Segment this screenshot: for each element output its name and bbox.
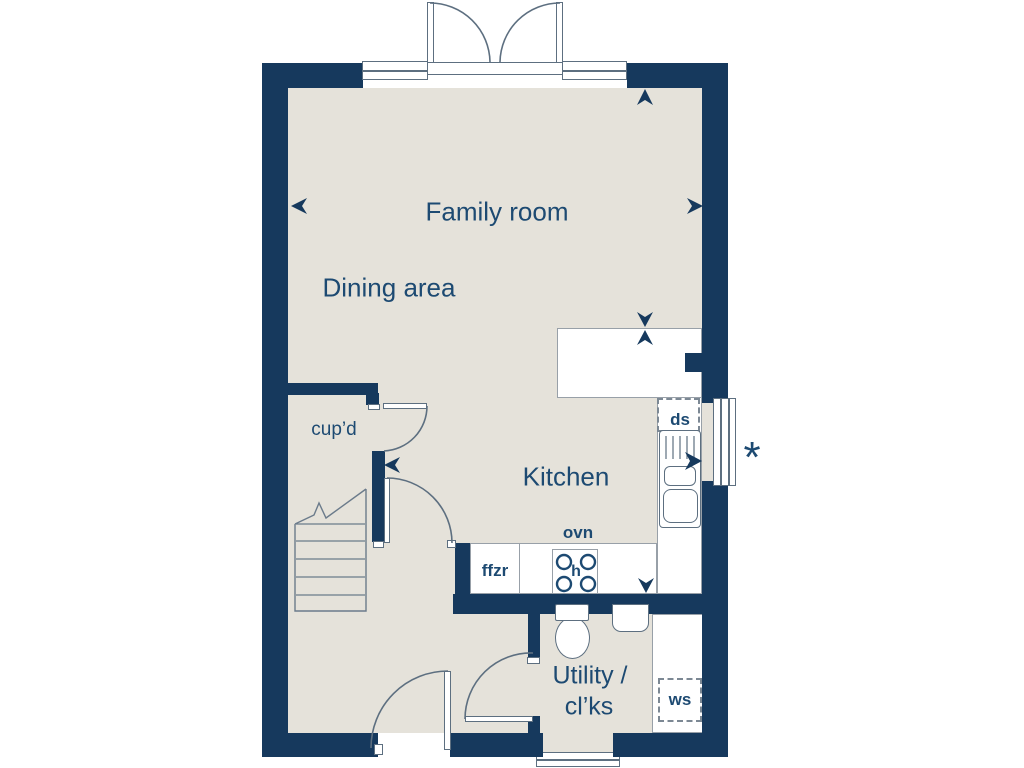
wall-right-stub: [685, 353, 702, 372]
jamb-front-door: [374, 744, 383, 755]
kitchen-door-panel: [384, 478, 390, 543]
toilet-bowl: [555, 617, 590, 659]
wall-kitchen-west: [455, 543, 470, 595]
cupboard-door-panel: [383, 403, 427, 409]
jamb-cupboard-door: [368, 404, 380, 410]
washer-space-label: ws: [669, 690, 692, 710]
back-door-step: [536, 752, 620, 767]
wall-utility-west-upper: [528, 614, 540, 658]
wall-right-upper: [702, 63, 728, 403]
oven-label: ovn: [563, 523, 593, 543]
fridge-freezer-label: ffzr: [482, 561, 508, 581]
window-right-line-1: [720, 399, 722, 485]
jamb-utility-door: [527, 657, 540, 664]
french-door-leaf-right: [556, 2, 563, 63]
family-room-label: Family room: [425, 197, 568, 228]
toilet-cistern: [555, 604, 589, 621]
wall-bottom-middle: [450, 733, 543, 757]
wall-right-lower: [702, 481, 728, 757]
floor-plan: Family room Dining area Kitchen cup’d Ut…: [0, 0, 1024, 768]
sink-bowl-small: [664, 466, 696, 486]
door-sill: [426, 62, 564, 75]
wall-left: [262, 63, 288, 757]
window-top-left: [362, 61, 428, 80]
sink-bowl-large: [663, 489, 698, 523]
counter-divider-ffzr: [519, 544, 520, 593]
utility-label-line1: Utility /: [553, 662, 628, 691]
jamb-kitchen-door-left: [373, 541, 384, 548]
wall-bottom-right: [613, 733, 728, 757]
dishwasher-space-label: ds: [670, 410, 690, 430]
jamb-kitchen-door-right: [447, 540, 456, 548]
window-asterisk-marker: *: [743, 433, 760, 483]
hob-label: h: [571, 563, 581, 581]
wall-cupboard-top: [288, 383, 378, 395]
kitchen-label: Kitchen: [523, 462, 610, 493]
window-right-frame: [713, 398, 736, 486]
window-top-right-midline: [563, 70, 626, 72]
hand-basin: [612, 604, 649, 632]
back-door-step-line: [537, 759, 619, 761]
window-right-line-2: [728, 399, 730, 485]
french-door-arc-left: [430, 3, 490, 62]
utility-label-line2: cl’ks: [565, 693, 614, 722]
back-door-slab: [543, 733, 613, 753]
wall-bottom-left: [262, 733, 378, 757]
cupboard-label: cup’d: [311, 419, 356, 441]
front-door-panel: [444, 671, 451, 750]
dining-area-label: Dining area: [323, 273, 456, 304]
utility-door-panel: [465, 716, 533, 722]
french-door-leaf-left: [427, 2, 434, 63]
kitchen-counter-top: [557, 328, 702, 398]
interior-floor: [288, 88, 702, 733]
window-top-left-midline: [363, 70, 427, 72]
french-door-arc-right: [500, 3, 560, 62]
window-top-right: [562, 61, 627, 80]
